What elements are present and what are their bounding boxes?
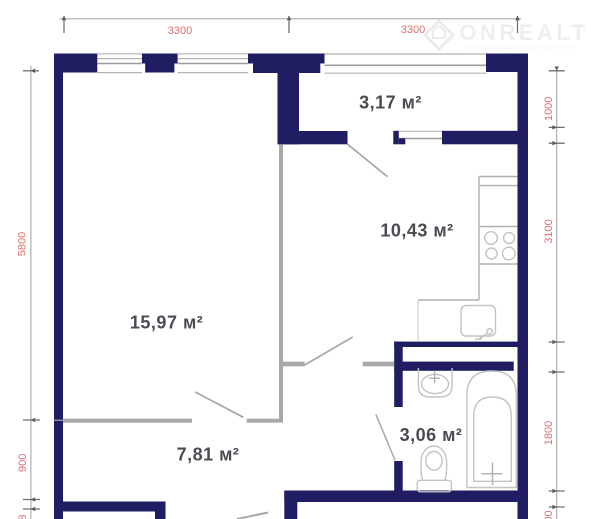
svg-text:3300: 3300 bbox=[168, 25, 192, 37]
svg-text:1000: 1000 bbox=[543, 97, 555, 121]
svg-text:7,81 м²: 7,81 м² bbox=[177, 445, 240, 465]
svg-text:ONREALT: ONREALT bbox=[459, 20, 588, 45]
svg-text:1800: 1800 bbox=[543, 421, 555, 445]
svg-text:3100: 3100 bbox=[543, 219, 555, 243]
svg-text:3,17 м²: 3,17 м² bbox=[359, 93, 422, 113]
svg-text:3300: 3300 bbox=[401, 24, 425, 36]
svg-text:3,06 м²: 3,06 м² bbox=[400, 425, 463, 445]
svg-text:15,97 м²: 15,97 м² bbox=[130, 313, 203, 333]
svg-text:8: 8 bbox=[17, 514, 29, 519]
svg-text:00: 00 bbox=[543, 510, 555, 519]
svg-text:ОБЪЯВЛЕНИЯ НЕДВИЖИМОСТИ: ОБЪЯВЛЕНИЯ НЕДВИЖИМОСТИ bbox=[465, 46, 573, 52]
svg-text:10,43 м²: 10,43 м² bbox=[380, 221, 453, 241]
svg-text:900: 900 bbox=[17, 454, 29, 472]
svg-text:5800: 5800 bbox=[17, 232, 29, 256]
